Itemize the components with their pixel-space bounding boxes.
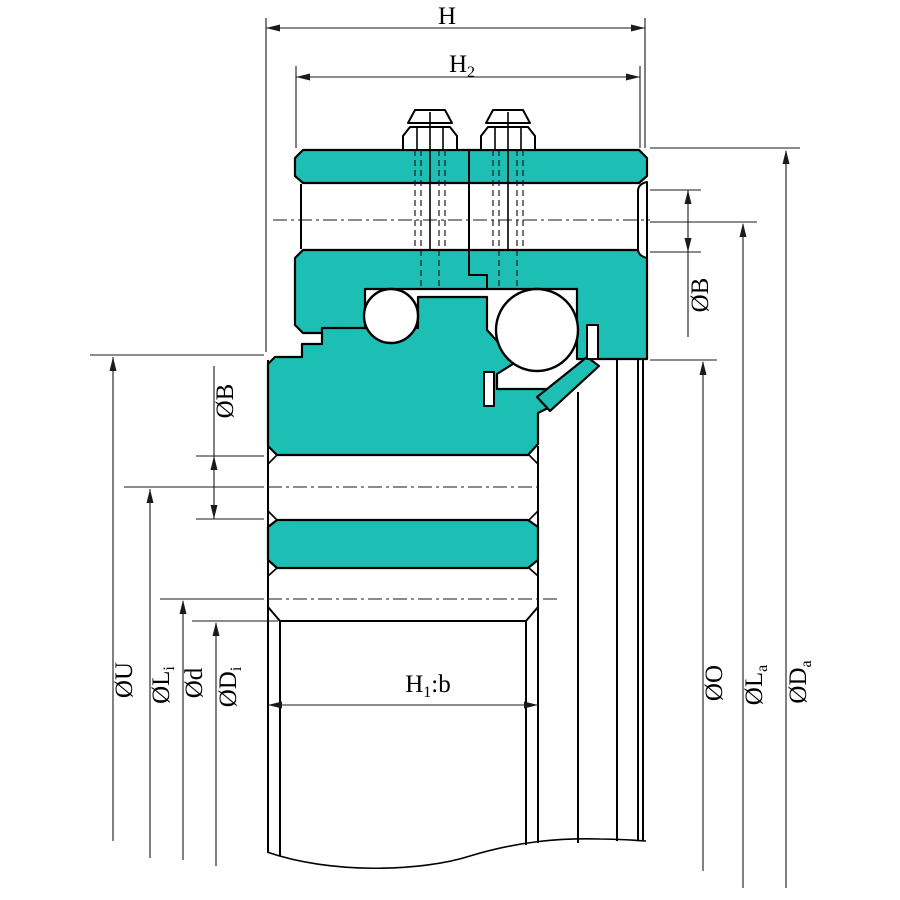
dim-label-o: ØO xyxy=(701,665,728,701)
dim-label-h1b: H1:b xyxy=(405,671,451,701)
end-cap-cylinder-edges xyxy=(578,360,643,843)
dim-label-b-left: ØB xyxy=(212,384,239,419)
dim-label-b-right: ØB xyxy=(687,278,714,313)
dim-label-d: Ød xyxy=(181,667,208,698)
shaft-break-line xyxy=(267,839,646,868)
dim-label-la: ØLa xyxy=(741,665,771,705)
technical-drawing: H H2 H1:b ØB xyxy=(0,0,900,900)
dimension-b-right: ØB xyxy=(650,190,714,337)
dimension-u: ØU xyxy=(90,355,264,841)
dimension-o: ØO xyxy=(650,360,728,871)
dimension-h1b: H1:b xyxy=(268,671,538,709)
dim-label-da: ØDa xyxy=(785,660,815,703)
bearing-cross-section-svg: H H2 H1:b ØB xyxy=(0,0,900,900)
dimension-di: ØDi xyxy=(192,621,278,866)
dim-label-u: ØU xyxy=(111,662,138,698)
dim-label-di: ØDi xyxy=(215,666,245,707)
sleeve-relief-notch xyxy=(484,372,494,406)
dimension-b-left: ØB xyxy=(196,366,264,519)
dimension-d: Ød xyxy=(160,599,264,860)
dim-label-h2: H2 xyxy=(449,51,475,81)
dimension-la: ØLa xyxy=(650,222,771,888)
dimension-da: ØDa xyxy=(650,148,815,888)
shaft-edges xyxy=(267,607,646,868)
bearing-ball-right xyxy=(496,289,578,371)
locking-collar-band xyxy=(268,520,538,568)
dim-label-li: ØLi xyxy=(148,666,178,704)
cap-flange-band xyxy=(295,150,647,183)
dim-label-h: H xyxy=(438,3,456,30)
dimension-h2: H2 xyxy=(296,51,640,148)
seal-groove-slot xyxy=(587,325,598,359)
bearing-ball-left xyxy=(364,289,418,343)
